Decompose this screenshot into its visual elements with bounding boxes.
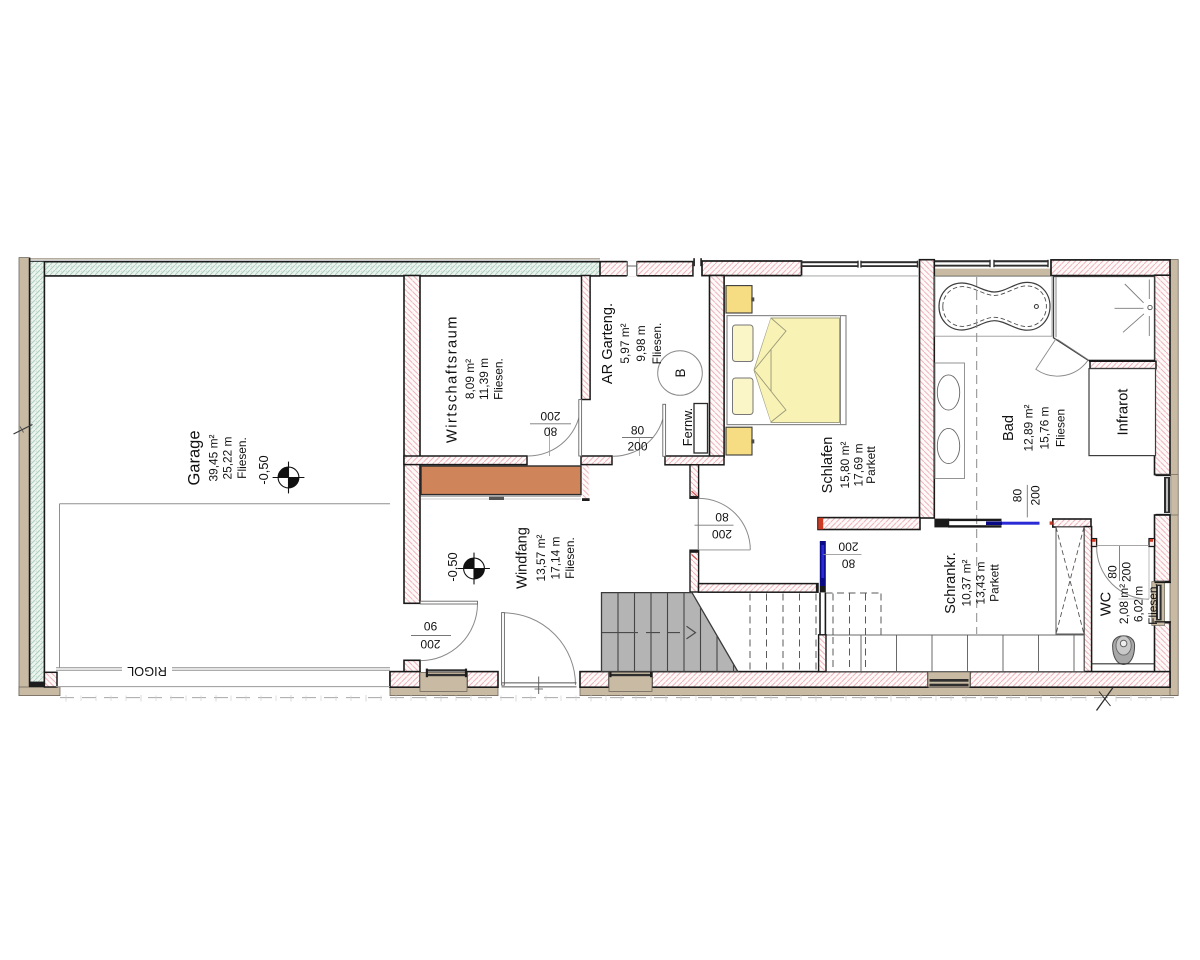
svg-text:13,57 m²: 13,57 m²: [534, 535, 548, 582]
svg-text:80: 80: [631, 424, 645, 438]
svg-text:80: 80: [1011, 489, 1025, 503]
svg-text:90: 90: [424, 619, 438, 633]
svg-text:9,98 m: 9,98 m: [634, 325, 648, 361]
svg-text:80: 80: [842, 557, 856, 571]
svg-text:8,09 m²: 8,09 m²: [463, 359, 477, 399]
svg-text:6,02 m: 6,02 m: [1132, 586, 1146, 622]
svg-text:15,76 m: 15,76 m: [1038, 406, 1052, 449]
svg-text:12,89 m²: 12,89 m²: [1022, 405, 1036, 452]
svg-text:Garage: Garage: [185, 430, 203, 485]
svg-text:11,39 m: 11,39 m: [477, 358, 491, 400]
svg-text:Bad: Bad: [1001, 415, 1017, 441]
svg-text:AR Garteng.: AR Garteng.: [600, 303, 616, 384]
svg-text:39,45 m²: 39,45 m²: [207, 435, 221, 482]
svg-text:80: 80: [544, 424, 558, 438]
svg-text:Parkett: Parkett: [864, 445, 878, 483]
svg-text:15,80 m²: 15,80 m²: [838, 442, 852, 489]
svg-text:10,37 m²: 10,37 m²: [960, 560, 974, 607]
svg-text:Fliesen.: Fliesen.: [650, 323, 664, 365]
svg-text:Infrarot: Infrarot: [1116, 389, 1132, 436]
svg-text:80: 80: [1106, 565, 1120, 579]
svg-text:-0,50: -0,50: [256, 455, 271, 484]
svg-text:Fliesen.: Fliesen.: [492, 358, 506, 400]
svg-text:Wirtschaftsraum: Wirtschaftsraum: [445, 315, 461, 443]
svg-text:-0,50: -0,50: [445, 552, 460, 581]
svg-text:Fliesen: Fliesen: [1054, 409, 1068, 447]
svg-text:80: 80: [715, 510, 729, 524]
svg-text:Fliesen.: Fliesen.: [235, 437, 249, 479]
svg-text:Schrankr.: Schrankr.: [943, 552, 959, 614]
svg-text:25,22 m: 25,22 m: [221, 436, 235, 479]
svg-text:200: 200: [1120, 562, 1134, 582]
svg-text:WC: WC: [1099, 592, 1115, 616]
svg-text:Parkett: Parkett: [988, 563, 1002, 601]
svg-text:2,08 m²: 2,08 m²: [1117, 584, 1131, 624]
svg-text:13,43 m: 13,43 m: [974, 561, 988, 604]
svg-text:200: 200: [712, 527, 732, 541]
svg-text:Fliesen.: Fliesen.: [563, 537, 577, 579]
svg-text:200: 200: [540, 409, 560, 423]
svg-text:Fernw.: Fernw.: [680, 408, 695, 446]
svg-text:Fliesen.: Fliesen.: [1146, 583, 1160, 625]
svg-text:Schlafen: Schlafen: [820, 437, 836, 494]
svg-text:17,14 m: 17,14 m: [549, 536, 563, 579]
svg-text:5,97 m²: 5,97 m²: [618, 323, 632, 363]
svg-text:B: B: [673, 368, 688, 377]
svg-text:RIGOL: RIGOL: [127, 664, 167, 679]
svg-text:200: 200: [838, 540, 858, 554]
svg-text:200: 200: [627, 440, 647, 454]
svg-text:Windfang: Windfang: [515, 527, 531, 589]
svg-text:200: 200: [1029, 485, 1043, 505]
svg-text:200: 200: [420, 637, 440, 651]
